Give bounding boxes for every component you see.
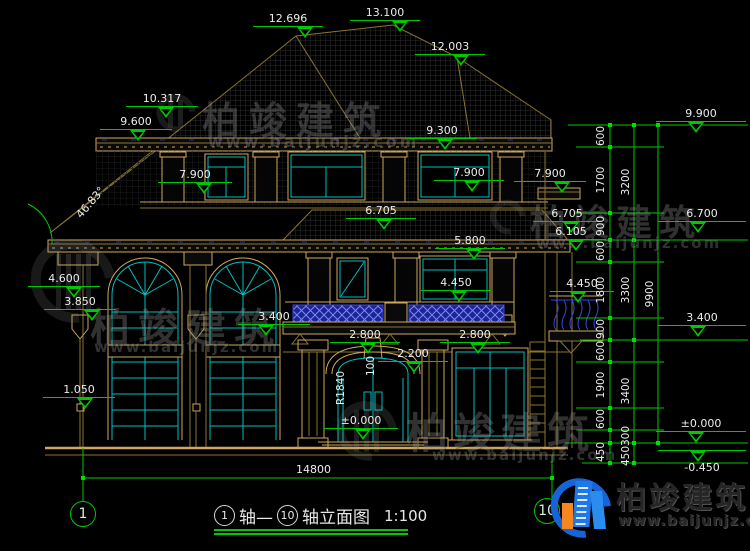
elevation-line xyxy=(28,286,100,287)
title-join: 轴— xyxy=(239,503,273,528)
chain-dimension-value: 1700 xyxy=(595,167,607,194)
first-floor-window xyxy=(448,348,532,440)
elevation-value: 2.200 xyxy=(378,347,448,360)
elevation-triangle-icon xyxy=(570,292,586,303)
elevation-marker: 2.800 xyxy=(330,328,400,343)
chain-dimension-value: 3300 xyxy=(620,277,632,304)
mid-roof xyxy=(283,210,568,240)
elevation-line xyxy=(324,428,398,429)
elevation-triangle-icon xyxy=(392,21,408,32)
chain-dimension-value: 600 xyxy=(595,409,607,429)
elevation-marker: ±0.000 xyxy=(656,417,746,432)
elevation-line xyxy=(238,324,310,325)
elevation-value: 3.850 xyxy=(44,295,116,308)
elevation-value: 10.317 xyxy=(126,92,198,105)
arched-windows xyxy=(108,258,280,440)
title-axis-start: 1 xyxy=(214,505,235,526)
elevation-marker: ±0.000 xyxy=(324,414,398,429)
elevation-marker: 2.800 xyxy=(440,328,510,343)
brand-logo: 柏竣建筑 www.baijunjz.com xyxy=(548,467,750,549)
elevation-value: 5.800 xyxy=(435,234,505,247)
elevation-line xyxy=(158,182,232,183)
elevation-line xyxy=(434,180,504,181)
door-radius-label: R1840 xyxy=(335,371,347,405)
elevation-marker: 1.050 xyxy=(43,383,115,398)
elevation-line xyxy=(346,218,416,219)
elevation-triangle-icon xyxy=(258,325,274,336)
elevation-line xyxy=(253,26,323,27)
elevation-value: 7.900 xyxy=(158,168,232,181)
chain-dimension-value: 600 xyxy=(595,341,607,361)
elevation-triangle-icon xyxy=(437,139,453,150)
title-scale: 1:100 xyxy=(384,507,427,525)
axis-number: 1 xyxy=(79,506,88,522)
elevation-value: 6.705 xyxy=(346,204,416,217)
elevation-line xyxy=(378,361,448,362)
elevation-value: 7.900 xyxy=(434,166,504,179)
elevation-line xyxy=(658,221,746,222)
elevation-value: 2.800 xyxy=(330,328,400,341)
chain-dimension-value: 450 xyxy=(620,446,632,466)
elevation-line xyxy=(407,138,477,139)
elevation-line xyxy=(440,342,510,343)
elevation-marker: 6.705 xyxy=(533,207,601,222)
elevation-triangle-icon xyxy=(84,310,100,321)
elevation-drawing-canvas: 柏竣建筑 www.baijunjz.com 柏竣建筑 www.baijunjz.… xyxy=(0,0,750,551)
elevation-value: 3.400 xyxy=(238,310,310,323)
elevation-value: ±0.000 xyxy=(324,414,398,427)
elevation-triangle-icon xyxy=(688,432,704,443)
elevation-marker: 7.900 xyxy=(514,167,586,182)
chain-dimension-value: 300 xyxy=(620,426,632,446)
title-axis-end: 10 xyxy=(277,505,298,526)
elevation-triangle-icon xyxy=(690,326,706,337)
chain-dimension-value: 1800 xyxy=(595,277,607,304)
elevation-marker: 7.900 xyxy=(158,168,232,183)
elevation-value: 4.450 xyxy=(421,276,491,289)
elevation-marker: 7.900 xyxy=(434,166,504,181)
elevation-triangle-icon xyxy=(297,27,313,38)
elevation-marker: 4.600 xyxy=(28,272,100,287)
elevation-line xyxy=(350,20,420,21)
elevation-marker: 9.300 xyxy=(407,124,477,139)
chain-dimension-value: 900 xyxy=(595,319,607,339)
elevation-line xyxy=(514,181,586,182)
elevation-triangle-icon xyxy=(453,55,469,66)
elevation-triangle-icon xyxy=(360,343,376,354)
elevation-marker: 10.317 xyxy=(126,92,198,107)
elevation-marker: 6.700 xyxy=(658,207,746,222)
elevation-value: 9.300 xyxy=(407,124,477,137)
elevation-triangle-icon xyxy=(568,240,584,251)
elevation-line xyxy=(656,121,746,122)
elevation-line xyxy=(658,450,746,451)
elevation-value: 12.696 xyxy=(253,12,323,25)
elevation-value: 13.100 xyxy=(350,6,420,19)
chain-dimension-value: 9900 xyxy=(644,281,656,308)
title-suffix: 轴立面图 xyxy=(302,503,370,528)
elevation-marker: 3.400 xyxy=(238,310,310,325)
elevation-triangle-icon xyxy=(196,183,212,194)
elevation-line xyxy=(126,106,198,107)
logo-building-icon xyxy=(572,481,592,527)
drawing-title: 1 轴— 10 轴立面图 1:100 xyxy=(214,503,427,528)
elevation-triangle-icon xyxy=(406,362,422,373)
elevation-line xyxy=(658,325,746,326)
elevation-line xyxy=(330,342,400,343)
elevation-value: 1.050 xyxy=(43,383,115,396)
axis-bubble-left: 1 xyxy=(70,501,96,527)
elevation-triangle-icon xyxy=(464,181,480,192)
elevation-marker: 12.696 xyxy=(253,12,323,27)
elevation-value: 9.900 xyxy=(656,107,746,120)
elevation-value: 12.003 xyxy=(415,40,485,53)
total-width-label: 14800 xyxy=(296,463,331,476)
elevation-value: 9.600 xyxy=(100,115,172,128)
elevation-marker: 9.600 xyxy=(100,115,172,130)
elevation-line xyxy=(43,397,115,398)
elevation-value: 6.700 xyxy=(658,207,746,220)
elevation-marker: 5.800 xyxy=(435,234,505,249)
main-cornice xyxy=(96,138,552,151)
elevation-value: 6.705 xyxy=(533,207,601,220)
elevation-triangle-icon xyxy=(470,343,486,354)
elevation-triangle-icon xyxy=(690,451,706,462)
chain-dimension-value: 3200 xyxy=(620,169,632,196)
elevation-marker: 12.003 xyxy=(415,40,485,55)
elevation-marker: 3.400 xyxy=(658,311,746,326)
ground-line xyxy=(45,448,568,455)
elevation-triangle-icon xyxy=(451,291,467,302)
elevation-line xyxy=(44,309,116,310)
elevation-line xyxy=(415,54,485,55)
elevation-value: 2.800 xyxy=(440,328,510,341)
elevation-triangle-icon xyxy=(688,122,704,133)
elevation-marker: 4.450 xyxy=(421,276,491,291)
elevation-value: 4.600 xyxy=(28,272,100,285)
chain-dimension-value: 1900 xyxy=(595,372,607,399)
elevation-triangle-icon xyxy=(690,222,706,233)
chain-dimension-value: 450 xyxy=(595,442,607,462)
chain-dimension-value: 600 xyxy=(595,126,607,146)
elevation-marker: 9.900 xyxy=(656,107,746,122)
door-offset-label: 100 xyxy=(365,356,377,376)
elevation-value: 3.400 xyxy=(658,311,746,324)
logo-building-orange-icon xyxy=(562,503,573,529)
elevation-marker: 6.705 xyxy=(346,204,416,219)
elevation-triangle-icon xyxy=(77,398,93,409)
chain-dimension-value: 600 xyxy=(595,241,607,261)
elevation-value: ±0.000 xyxy=(656,417,746,430)
elevation-line xyxy=(100,129,172,130)
chain-dimension-value: 900 xyxy=(595,216,607,236)
elevation-triangle-icon xyxy=(355,429,371,440)
elevation-triangle-icon xyxy=(376,219,392,230)
logo-brand-text: 柏竣建筑 xyxy=(616,473,748,517)
elevation-marker: 3.850 xyxy=(44,295,116,310)
elevation-line xyxy=(435,248,505,249)
elevation-line xyxy=(533,221,601,222)
elevation-marker: 13.100 xyxy=(350,6,420,21)
chain-dimension-value: 3400 xyxy=(620,378,632,405)
logo-url-text: www.baijunjz.com xyxy=(618,513,750,529)
elevation-marker: 2.200 xyxy=(378,347,448,362)
elevation-triangle-icon xyxy=(466,249,482,260)
elevation-line xyxy=(656,431,746,432)
elevation-line xyxy=(421,290,491,291)
elevation-line xyxy=(536,239,606,240)
elevation-value: 7.900 xyxy=(514,167,586,180)
elevation-triangle-icon xyxy=(554,182,570,193)
elevation-triangle-icon xyxy=(130,130,146,141)
